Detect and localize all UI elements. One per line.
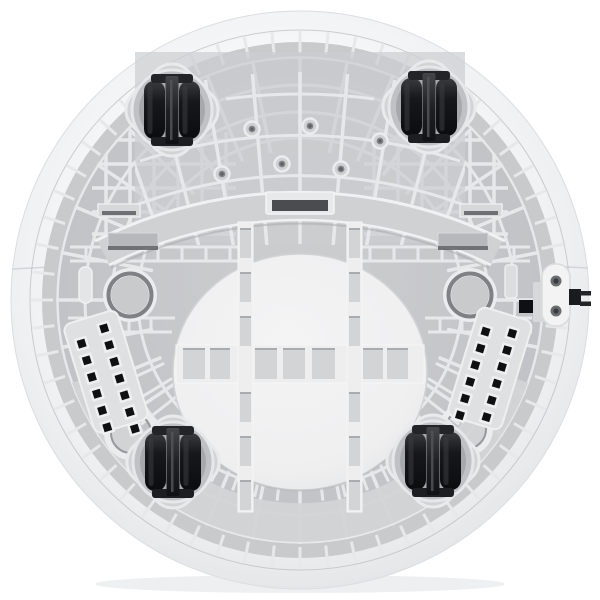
band-cutout — [349, 272, 360, 302]
screw-hole-center — [250, 127, 254, 131]
tire-highlight — [184, 438, 189, 486]
wheel-left-tire — [145, 433, 166, 491]
arch-clip-right — [460, 204, 502, 217]
beam-highlight — [171, 432, 174, 492]
screw-hole-center — [220, 172, 224, 176]
appliance-bottom-photo — [0, 0, 600, 600]
beam-highlight — [170, 80, 173, 140]
screw-boss-6 — [334, 162, 349, 177]
beam-highlight — [427, 77, 430, 137]
band-cutout — [240, 392, 251, 422]
band-cutout — [363, 348, 383, 379]
plug-body — [569, 289, 581, 305]
connector-plate — [542, 264, 570, 326]
band-cutout — [255, 348, 277, 379]
wheel-left-tire — [144, 81, 165, 139]
band-cutout — [349, 316, 360, 346]
tire-highlight — [405, 83, 410, 131]
tab-bar-left — [108, 233, 158, 247]
tire-highlight — [148, 86, 153, 134]
screw-boss-2 — [303, 119, 318, 134]
band-cutout — [240, 316, 251, 346]
band-cutout — [349, 480, 360, 510]
screw-boss-1 — [245, 122, 260, 137]
band-cutout — [387, 348, 408, 379]
product-photo: { "scene": { "type": "product-photo", "d… — [0, 0, 600, 600]
wheel-right-tire — [179, 81, 200, 139]
tire-highlight — [149, 438, 154, 486]
screw-boss-5 — [275, 157, 290, 172]
plug-prong-bottom — [580, 302, 591, 307]
band-cutout — [349, 392, 360, 422]
arch-center-slot — [272, 200, 328, 211]
band-cutout — [312, 348, 335, 379]
screw-boss-4 — [215, 167, 230, 182]
connector-screw-bottom-center — [553, 308, 558, 313]
band-cutout — [240, 480, 251, 510]
band-cutout — [240, 228, 251, 258]
connector-light-slot — [505, 265, 517, 298]
tab-bar-right — [438, 233, 488, 247]
band-cutout — [349, 436, 360, 466]
tire-highlight — [444, 437, 449, 485]
wheel-right-tire — [180, 433, 201, 491]
dome-vband-left — [238, 222, 253, 512]
dome-vband-right — [347, 222, 362, 512]
wheel-right-tire — [436, 78, 457, 136]
band-cutout — [183, 348, 205, 379]
arch-clip-right-slot — [464, 211, 498, 215]
band-cutout — [240, 272, 251, 302]
beam-highlight — [431, 431, 434, 491]
arch-clip-left — [98, 204, 140, 217]
left-edge-tab — [79, 267, 92, 303]
arch-clip-left-slot — [102, 211, 136, 215]
screw-hole-center — [339, 167, 343, 171]
connector-square-hole — [519, 300, 533, 313]
tire-highlight — [183, 86, 188, 134]
tab-bar-left-shadow — [108, 246, 158, 250]
wheel-left-tire — [401, 78, 422, 136]
screw-boss-3 — [373, 134, 388, 149]
plug-prong-top — [580, 291, 591, 296]
screw-hole-center — [280, 162, 284, 166]
band-cutout — [283, 348, 305, 379]
wheel-right-tire — [440, 432, 461, 490]
tab-bar-right-shadow — [438, 246, 488, 250]
band-cutout — [240, 436, 251, 466]
band-cutout — [210, 348, 230, 379]
tire-highlight — [440, 83, 445, 131]
band-cutout — [349, 228, 360, 258]
screw-hole-center — [308, 124, 312, 128]
tire-highlight — [409, 437, 414, 485]
connector-screw-top-center — [553, 278, 558, 283]
boss-center — [111, 276, 149, 314]
screw-hole-center — [378, 139, 382, 143]
wheel-left-tire — [405, 432, 426, 490]
